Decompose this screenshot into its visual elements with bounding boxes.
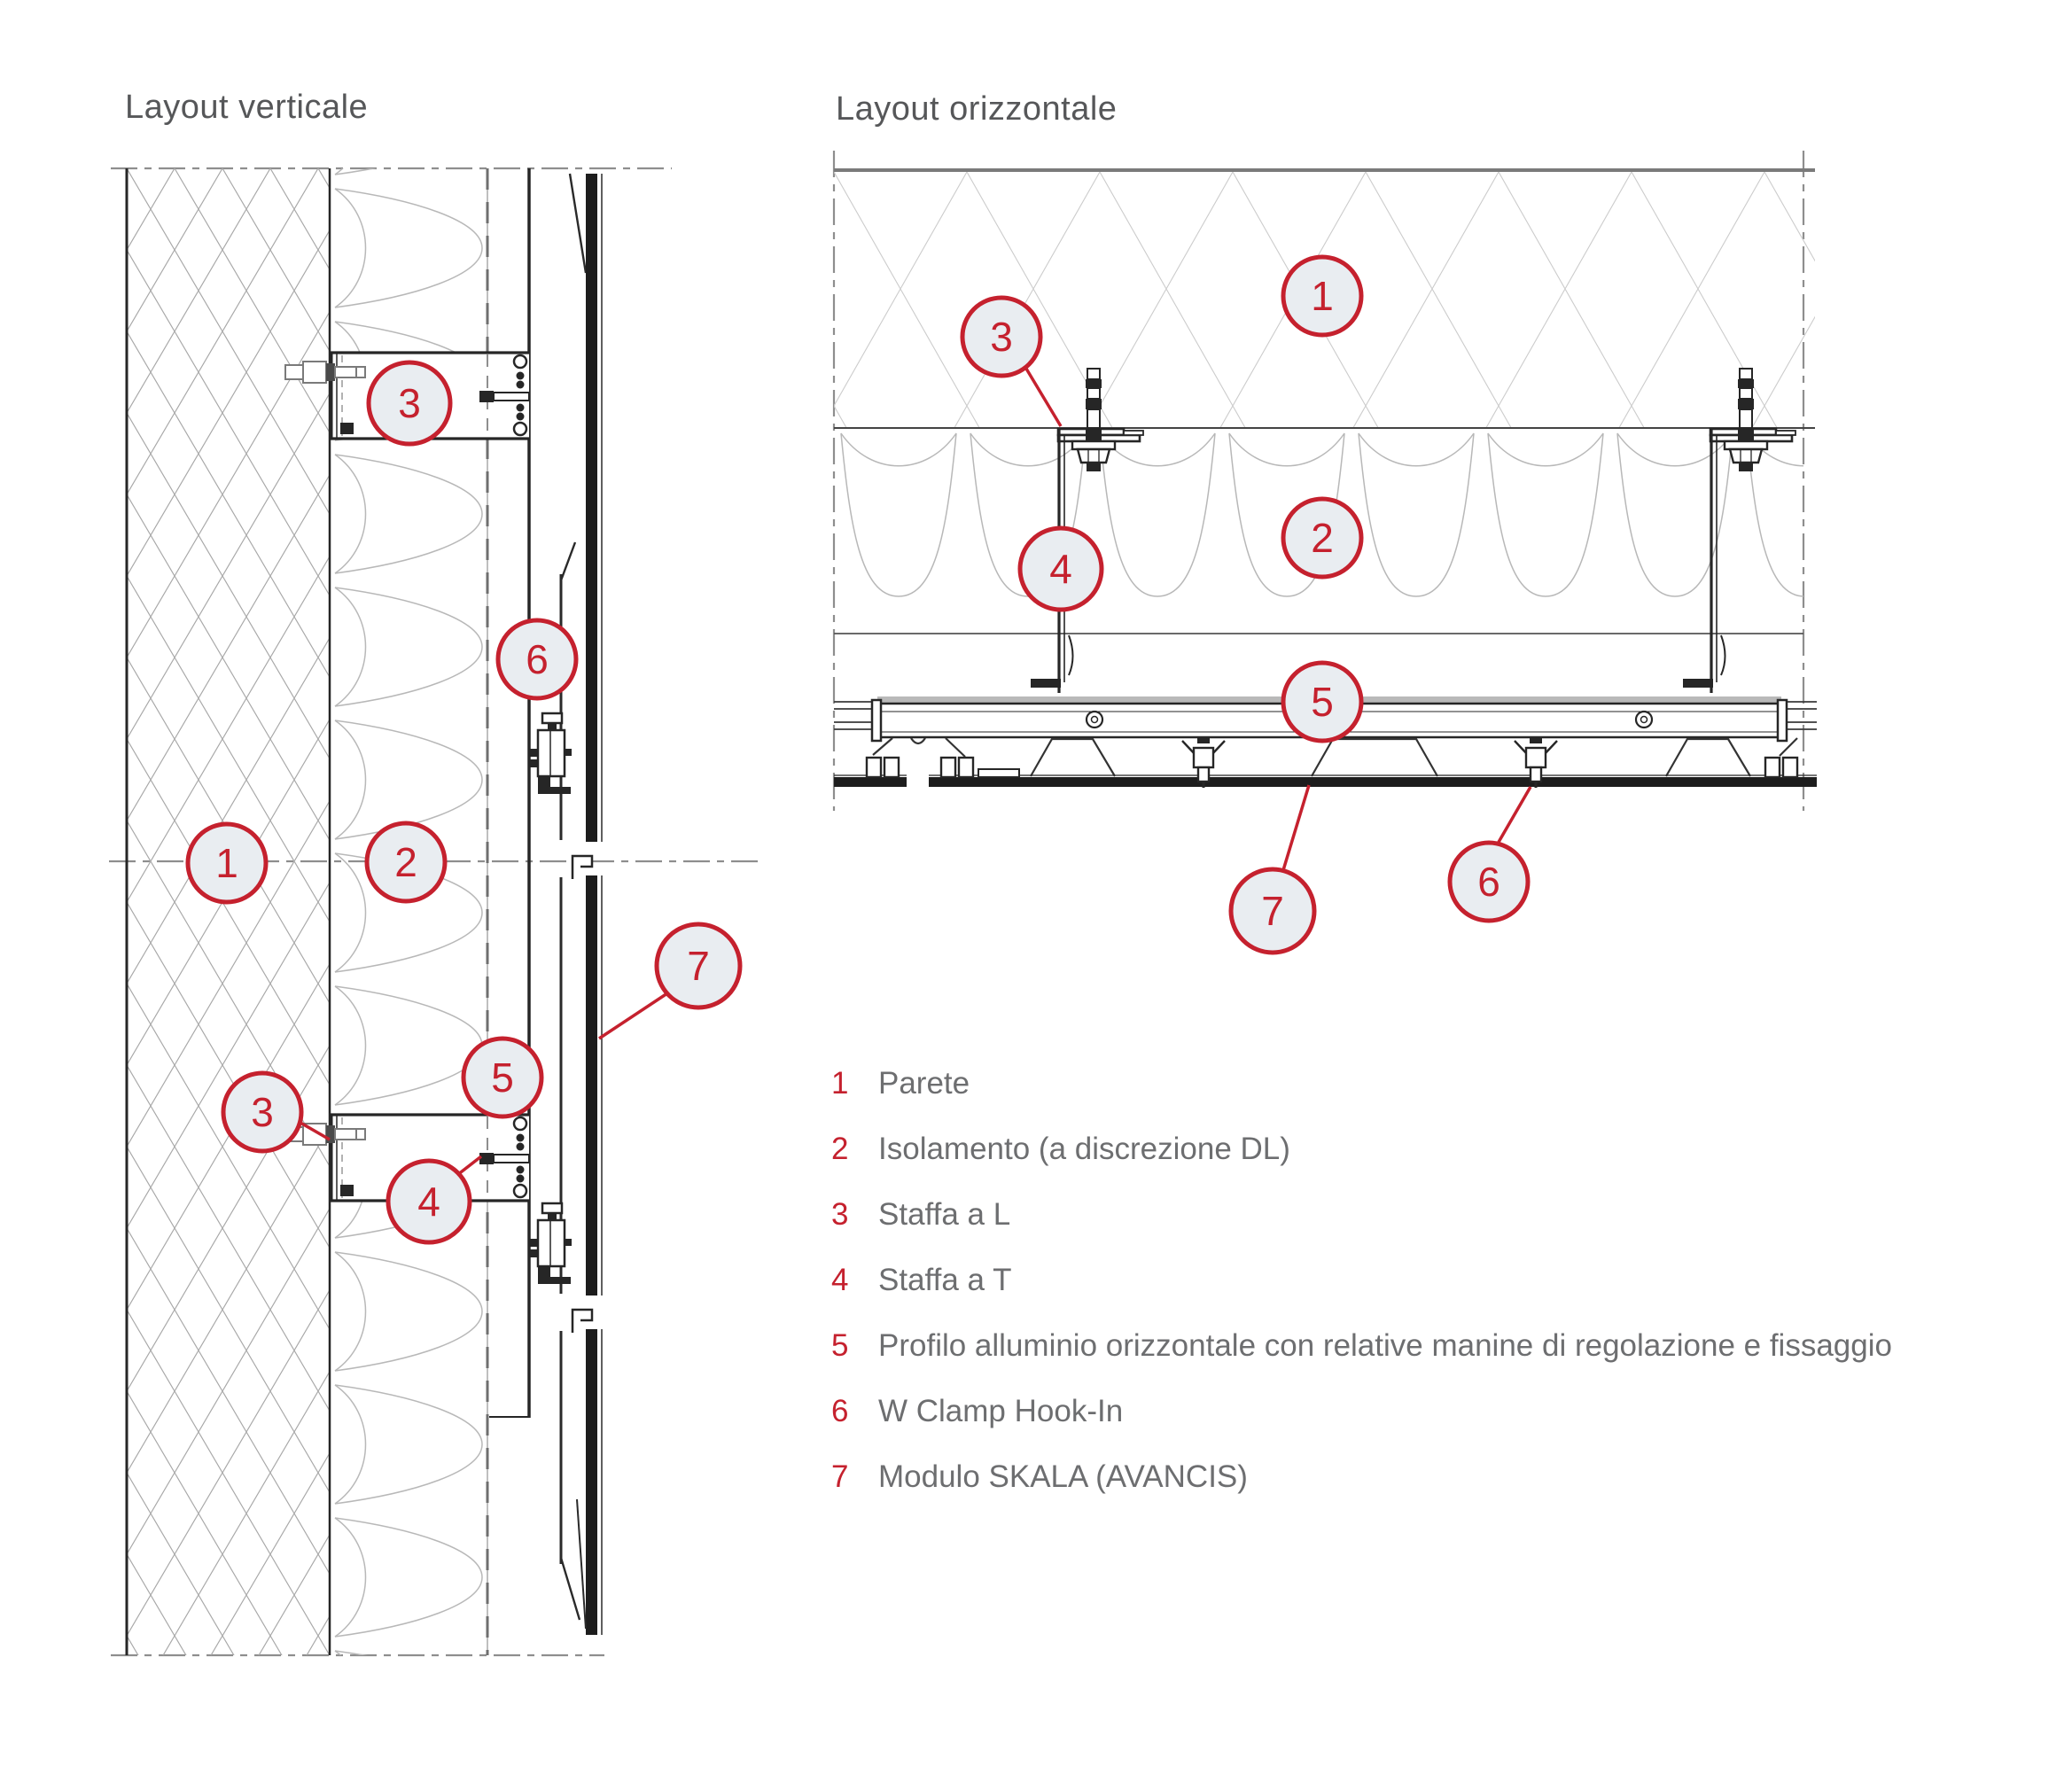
svg-text:2: 2 [1311,515,1334,561]
callout-parete: 1 [188,824,266,902]
legend-item-staffa-t: 4 Staffa a T [831,1248,1892,1313]
skala-module-panel [577,174,602,1635]
legend-label: Parete [878,1066,970,1101]
legend-label: W Clamp Hook-In [878,1394,1123,1429]
svg-text:3: 3 [251,1089,274,1135]
svg-text:5: 5 [1311,679,1334,725]
svg-text:5: 5 [491,1054,514,1101]
legend-item-parete: 1 Parete [831,1051,1892,1117]
legend-number: 5 [831,1328,878,1364]
svg-text:1: 1 [215,840,238,886]
legend-item-staffa-l: 3 Staffa a L [831,1182,1892,1248]
legend: 1 Parete 2 Isolamento (a discrezione DL)… [831,1051,1892,1510]
hook-in-rail-clips [867,758,1797,777]
legend-item-isolamento: 2 Isolamento (a discrezione DL) [831,1117,1892,1182]
legend-label: Profilo alluminio orizzontale con relati… [878,1328,1892,1364]
callout-staffa-t: 4 [1020,528,1102,610]
svg-text:2: 2 [394,839,417,885]
legend-label: Staffa a L [878,1197,1010,1233]
vertical-layout-title: Layout verticale [125,89,368,127]
callout-isolamento: 2 [367,823,445,901]
svg-text:1: 1 [1311,273,1334,319]
svg-text:4: 4 [417,1179,440,1225]
w-clamp-lower [529,1203,572,1284]
callout-staffa-l: 3 [962,298,1040,376]
horizontal-section-diagram: 1 3 2 4 5 [834,151,1817,953]
callout-profilo: 5 [463,1039,541,1117]
callout-w-clamp: 6 [498,620,576,698]
legend-number: 1 [831,1066,878,1101]
legend-number: 6 [831,1394,878,1429]
legend-number: 2 [831,1132,878,1167]
wall-parete [127,168,330,1655]
vertical-section-diagram: 3 6 1 2 7 [109,168,762,1655]
legend-label: Modulo SKALA (AVANCIS) [878,1459,1248,1495]
w-clamp-upper [529,713,572,794]
legend-label: Isolamento (a discrezione DL) [878,1132,1290,1167]
horizontal-layout-title: Layout orizzontale [836,90,1117,128]
svg-text:3: 3 [398,380,421,426]
callout-parete: 1 [1283,257,1361,335]
legend-number: 3 [831,1197,878,1233]
callout-profilo: 5 [1283,663,1361,741]
svg-text:7: 7 [1261,888,1284,934]
svg-text:7: 7 [687,943,710,989]
callout-staffa-l-upper: 3 [369,362,450,444]
svg-text:4: 4 [1049,546,1072,592]
callout-modulo-skala: 7 [1231,869,1314,953]
svg-text:6: 6 [526,636,549,682]
legend-number: 4 [831,1263,878,1298]
legend-item-profilo: 5 Profilo alluminio orizzontale con rela… [831,1313,1892,1379]
callout-modulo-skala: 7 [657,924,740,1008]
legend-item-w-clamp: 6 W Clamp Hook-In [831,1379,1892,1444]
legend-label: Staffa a T [878,1263,1011,1298]
svg-text:3: 3 [990,314,1013,360]
callout-isolamento: 2 [1283,499,1361,577]
callout-staffa-t: 4 [388,1161,470,1242]
legend-number: 7 [831,1459,878,1495]
legend-item-modulo-skala: 7 Modulo SKALA (AVANCIS) [831,1444,1892,1510]
callout-w-clamp: 6 [1450,843,1528,921]
page: Layout verticale Layout orizzontale [0,0,2072,1770]
svg-text:6: 6 [1477,859,1500,905]
callout-staffa-l-lower: 3 [223,1073,301,1151]
